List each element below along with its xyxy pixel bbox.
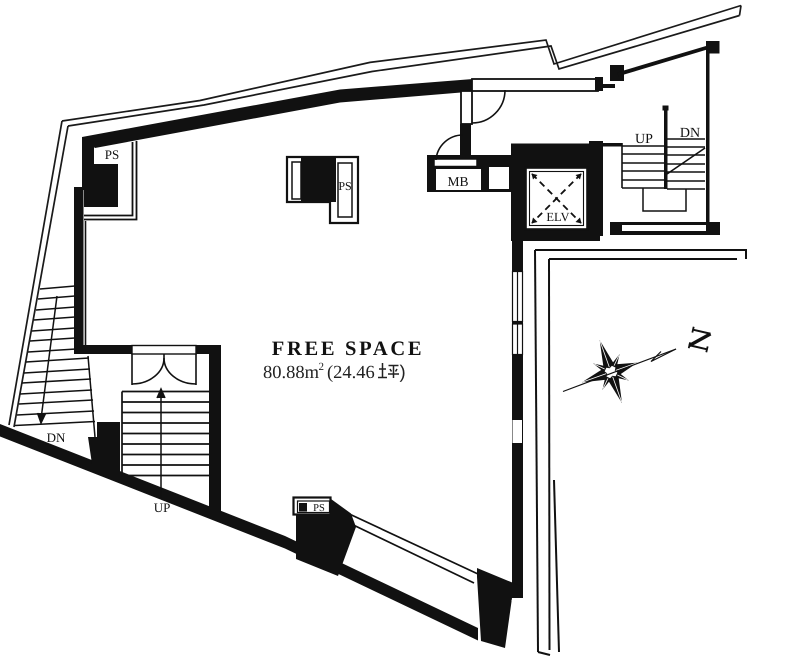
svg-text:DN: DN (680, 126, 700, 141)
svg-text:): ) (400, 361, 406, 382)
svg-text:ELV: ELV (546, 210, 569, 224)
svg-text:80.88m: 80.88m (263, 363, 320, 383)
svg-text:UP: UP (635, 132, 653, 147)
svg-text:PS: PS (338, 179, 351, 193)
svg-text:UP: UP (154, 500, 171, 515)
svg-text:2: 2 (319, 361, 325, 373)
svg-text:DN: DN (47, 430, 66, 445)
svg-text:PS: PS (313, 503, 325, 514)
svg-text:FREE SPACE: FREE SPACE (272, 338, 424, 360)
svg-text:MB: MB (447, 174, 468, 189)
svg-text:(24.46: (24.46 (327, 363, 375, 383)
svg-text:PS: PS (105, 147, 119, 162)
